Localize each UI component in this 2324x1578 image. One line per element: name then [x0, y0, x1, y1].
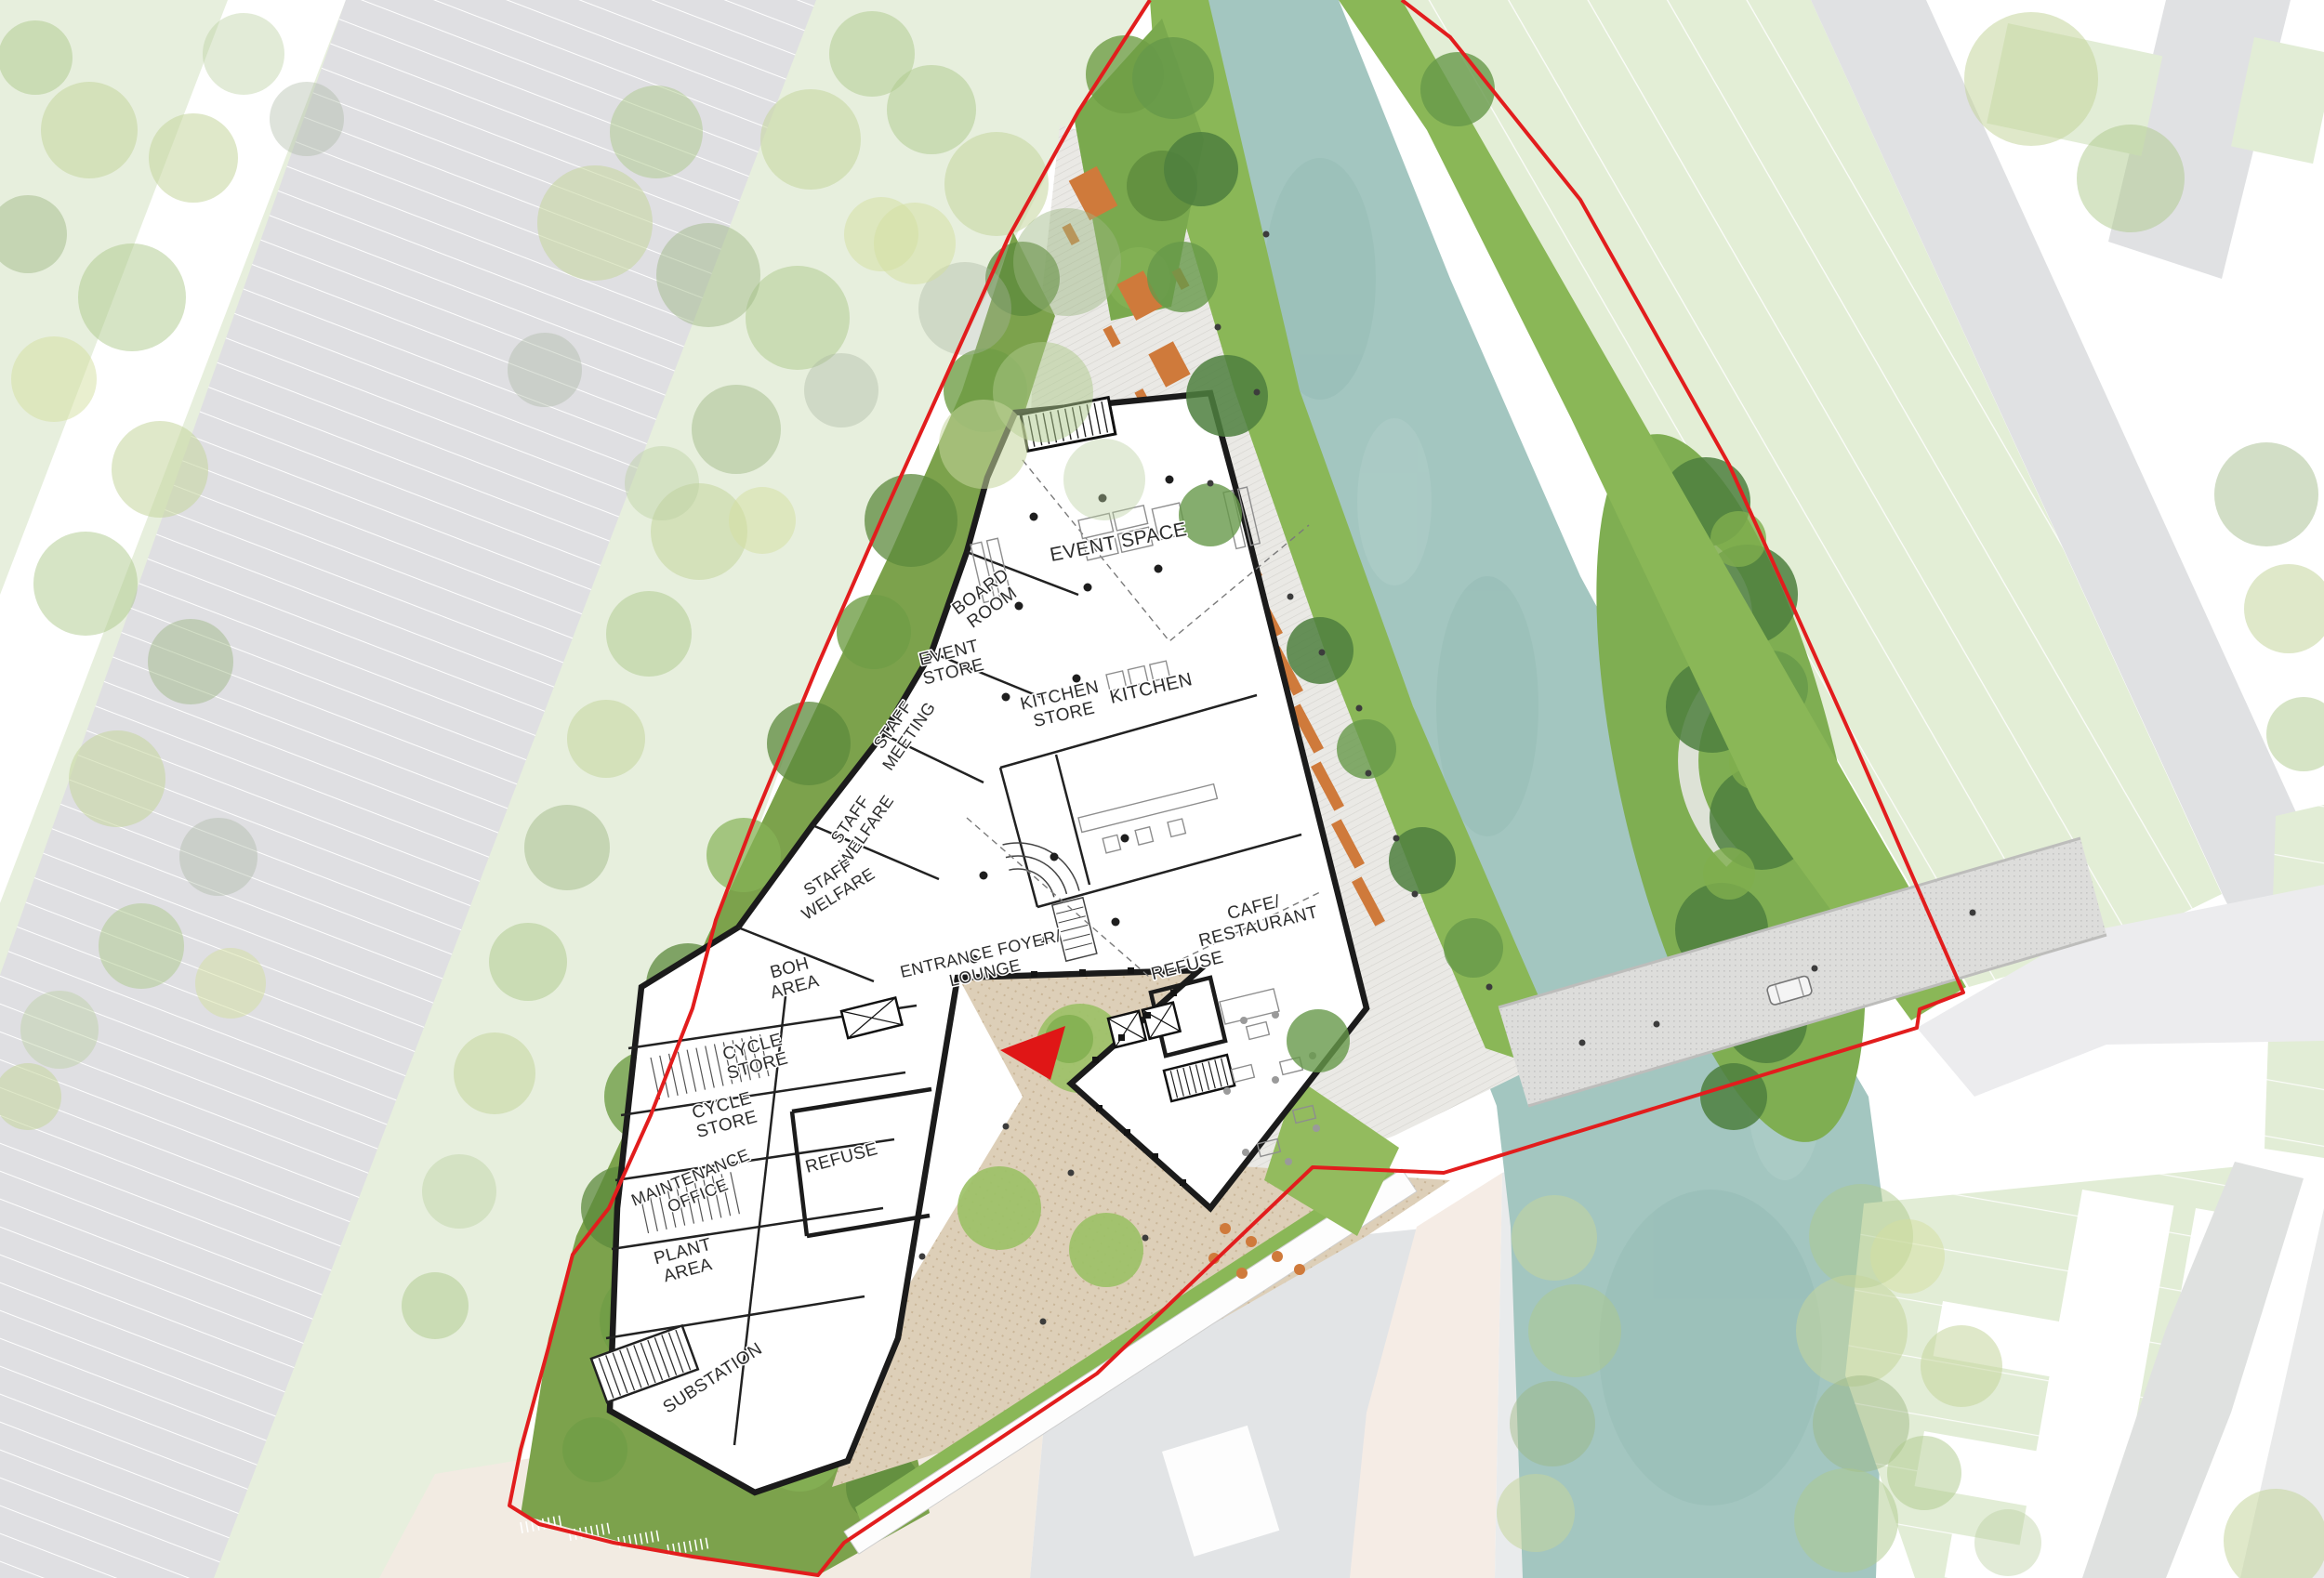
site-plan-drawing: EVENT SPACE BOARDROOM EVENTSTORE KITCHEN… — [0, 0, 2324, 1578]
site-plan-canvas: EVENT SPACE BOARDROOM EVENTSTORE KITCHEN… — [0, 0, 2324, 1578]
